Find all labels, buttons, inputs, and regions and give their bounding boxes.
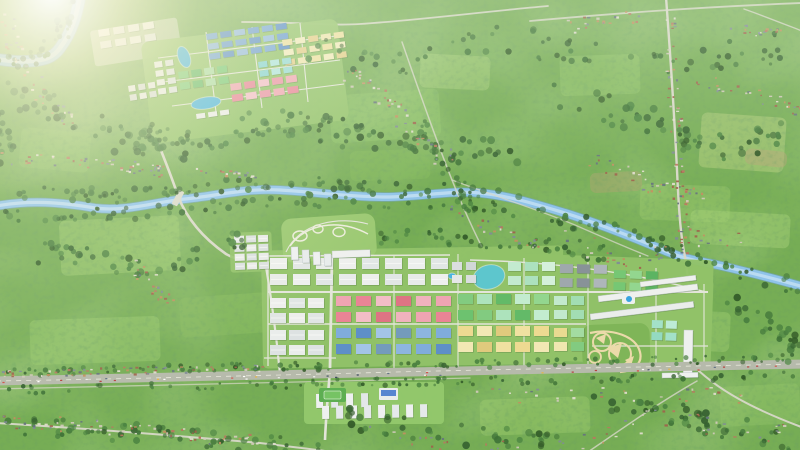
aerial-masterplan-render <box>0 0 800 450</box>
sun-glare <box>0 0 800 450</box>
scene-svg <box>0 0 800 450</box>
